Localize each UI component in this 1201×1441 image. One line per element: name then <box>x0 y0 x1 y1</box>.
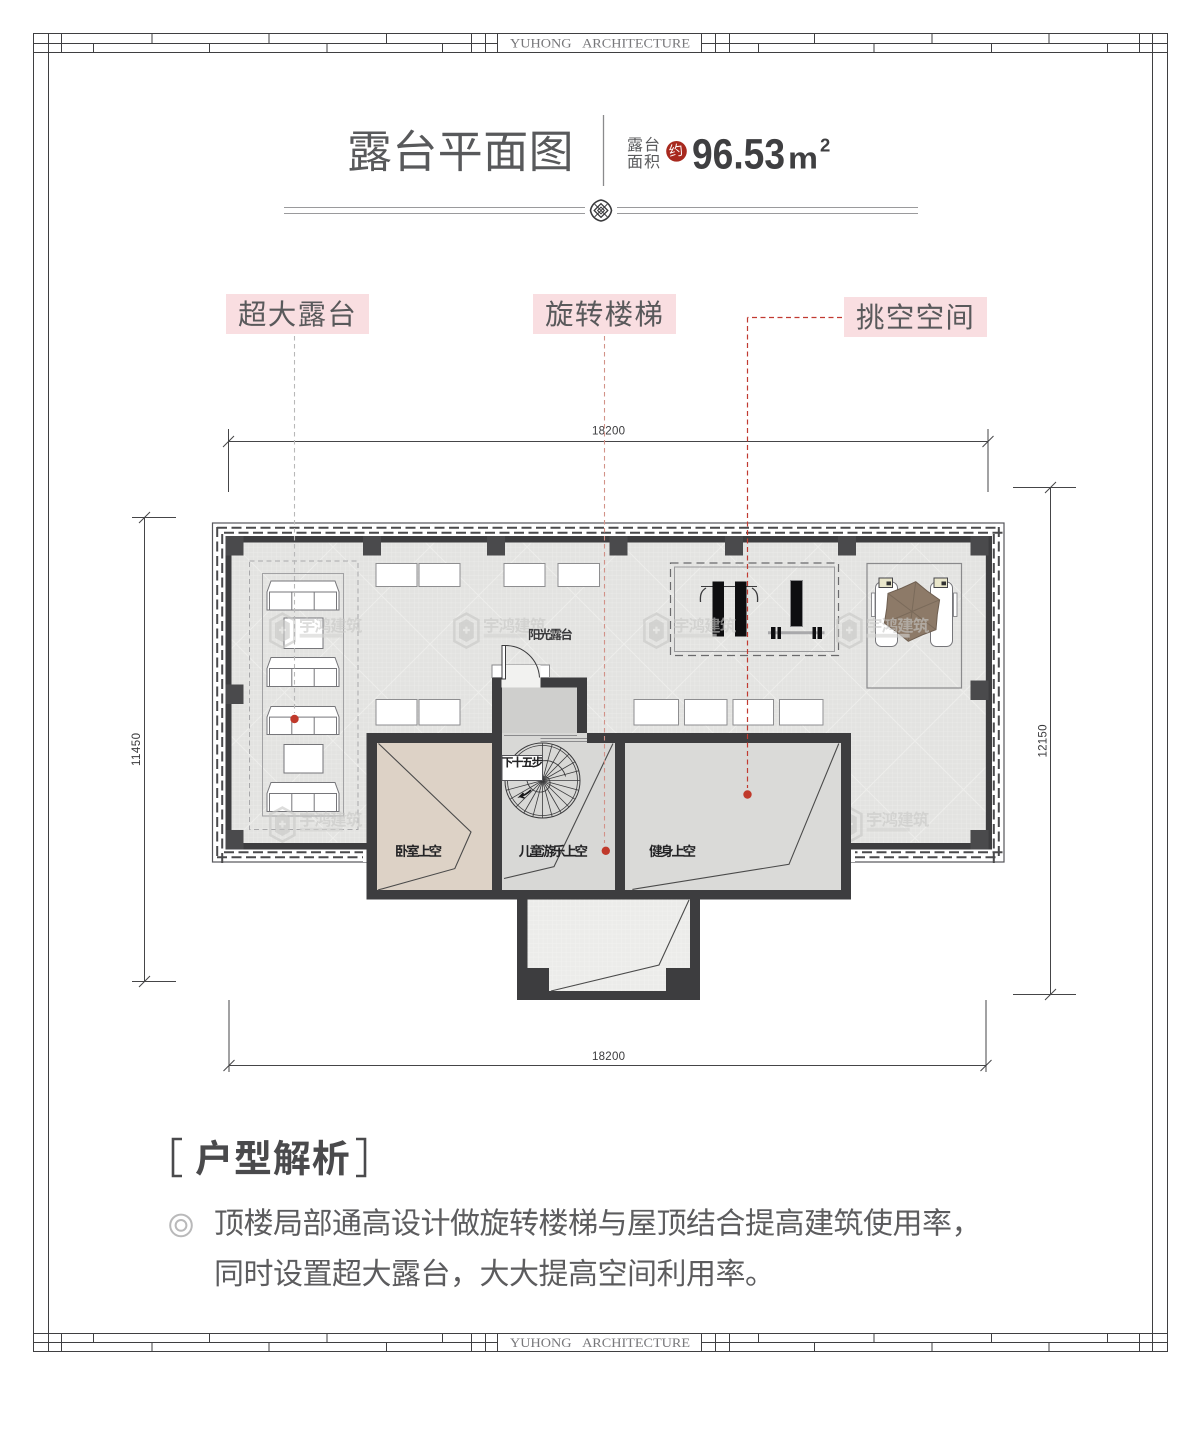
svg-text:2: 2 <box>820 135 830 156</box>
svg-text:YUHONG ARCHITECTURE: YUHONG ARCHITECTURE <box>510 1336 690 1350</box>
svg-text:18200: 18200 <box>592 1051 625 1063</box>
svg-text:m: m <box>788 141 818 176</box>
svg-text:YUHONG ARCHITECTURE: YUHONG ARCHITECTURE <box>510 37 690 51</box>
svg-text:12150: 12150 <box>1038 725 1050 758</box>
svg-text:96.53: 96.53 <box>692 132 785 179</box>
svg-text:18200: 18200 <box>592 426 625 438</box>
svg-text:11450: 11450 <box>131 733 143 766</box>
